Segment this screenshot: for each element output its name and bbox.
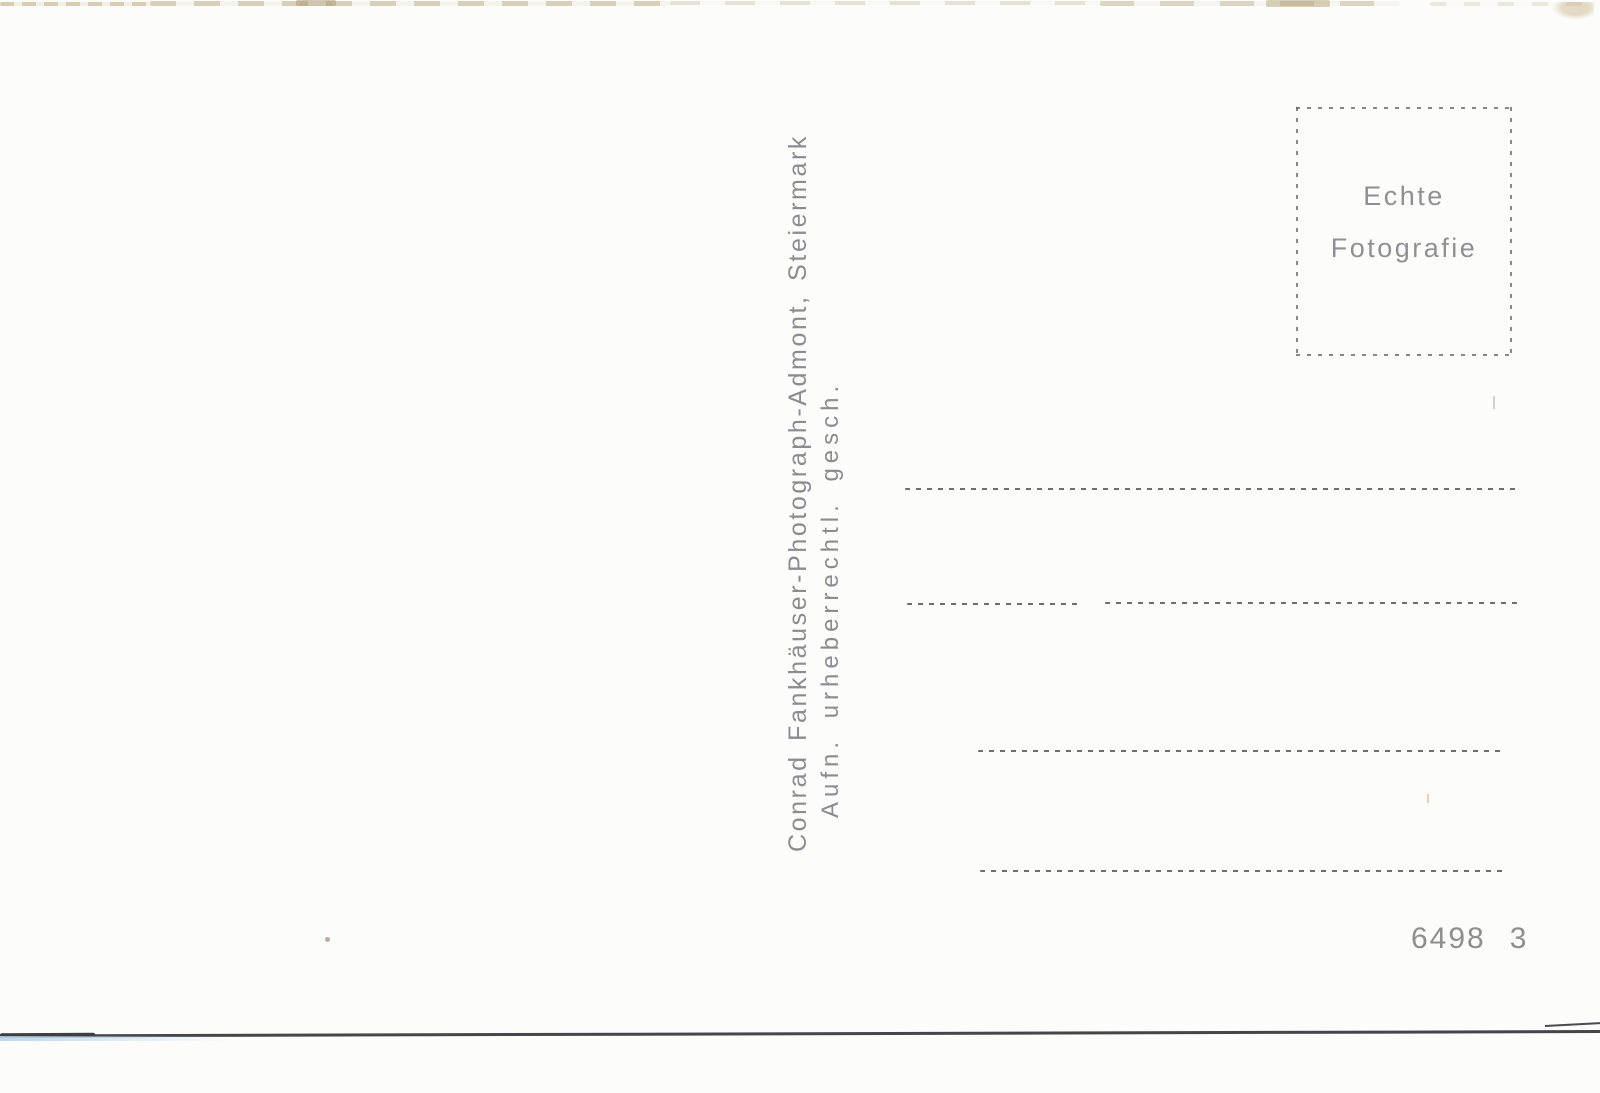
stamp-box-text-line-1: Echte — [1296, 181, 1512, 212]
imprint-line-2: Aufn. urheberrechtl. gesch. — [817, 336, 845, 818]
address-line-2-segment-b — [1105, 602, 1523, 604]
scan-artifact — [296, 0, 336, 6]
catalog-number-group: 64983 — [1411, 922, 1528, 956]
address-line-2-segment-a — [907, 603, 1082, 605]
stamp-box-border-right — [1510, 107, 1512, 356]
stamp-box-text-line-2: Fotografie — [1296, 233, 1512, 264]
bottom-edge-line — [0, 1030, 1600, 1037]
stamp-box: Echte Fotografie — [1296, 107, 1512, 356]
stamp-box-border-top — [1296, 107, 1512, 109]
imprint-line-1: Conrad Fankhäuser-Photograph-Admont, Ste… — [784, 148, 813, 852]
scan-artifact — [1100, 1, 1400, 6]
stamp-box-border-left — [1296, 107, 1298, 356]
scan-artifact — [150, 1, 670, 6]
scan-speck — [325, 937, 330, 942]
scan-artifact — [670, 1, 1100, 5]
address-line-4 — [980, 870, 1507, 872]
scan-artifact — [1266, 0, 1330, 7]
scan-artifact — [1548, 2, 1594, 22]
scan-speck — [1493, 396, 1495, 409]
top-edge-artifact — [0, 0, 1600, 8]
scan-speck — [1427, 794, 1429, 803]
postcard-scan: Conrad Fankhäuser-Photograph-Admont, Ste… — [0, 0, 1600, 1093]
catalog-number: 6498 — [1411, 922, 1486, 955]
series-number: 3 — [1510, 922, 1529, 955]
stamp-box-border-bottom — [1296, 354, 1512, 356]
address-line-3 — [978, 750, 1506, 752]
address-line-1 — [905, 488, 1520, 490]
bottom-edge-right-upturn — [1545, 1022, 1600, 1027]
bottom-edge-blue-tint — [0, 1036, 230, 1041]
scan-artifact — [0, 2, 150, 6]
